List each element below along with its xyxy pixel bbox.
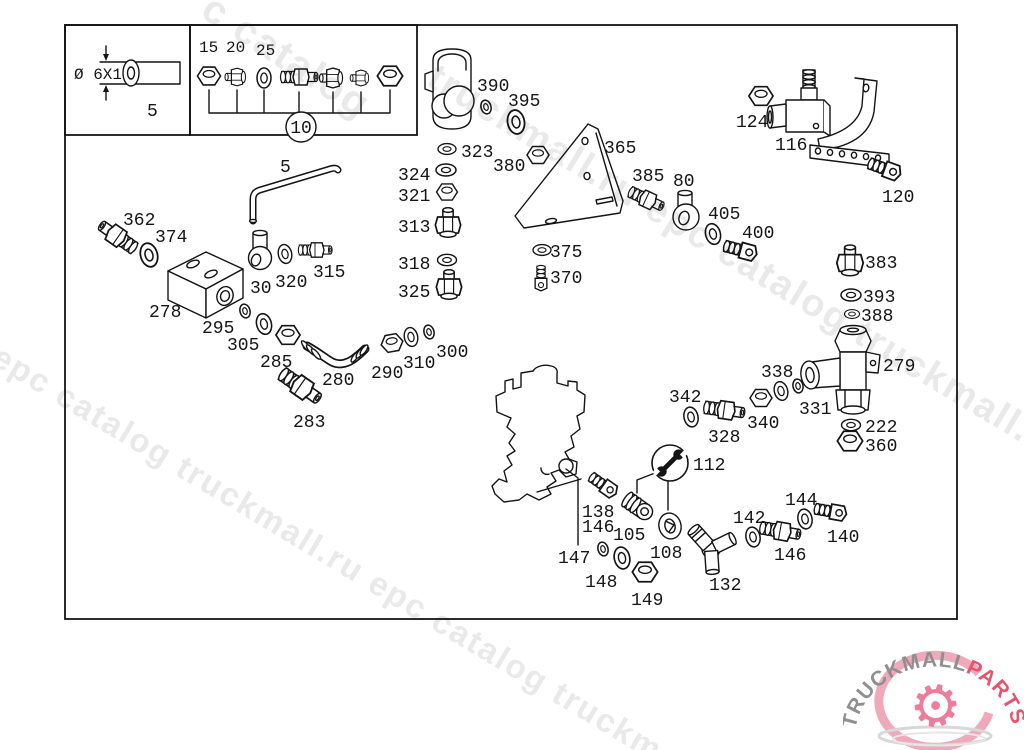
group-item-label: 15 <box>199 39 218 57</box>
tube-length-label: 5 <box>147 102 158 122</box>
part-label-390: 390 <box>477 77 509 97</box>
seal-ring-icon <box>845 310 860 319</box>
part-label-342: 342 <box>669 388 701 408</box>
dimension-arrow-down <box>103 54 109 61</box>
o-ring-icon <box>403 326 420 347</box>
part-label-383: 383 <box>865 254 897 274</box>
part-label-388: 388 <box>861 307 893 327</box>
cap-nut-icon <box>276 326 300 345</box>
truckmall-logo: ⚙ TRUCKMALLPARTS <box>843 633 1024 750</box>
part-5-pipe-glyph <box>250 168 338 222</box>
part-label-385: 385 <box>632 167 664 187</box>
fitting-icon <box>586 470 620 500</box>
washer-icon <box>533 245 551 256</box>
part-label-80: 80 <box>673 172 695 192</box>
o-ring-icon <box>238 303 251 319</box>
plug-fitting-icon <box>435 208 460 237</box>
o-ring-icon <box>422 324 435 340</box>
part-280-glyph <box>300 340 369 364</box>
nut-icon <box>527 147 549 164</box>
part-label-365: 365 <box>604 139 636 159</box>
tube-dimension-label: Ø 6X1 <box>74 66 122 84</box>
part-label-315: 315 <box>313 263 345 283</box>
part-label-338: 338 <box>761 363 793 383</box>
group-item-label: 25 <box>256 42 275 60</box>
part-label-108: 108 <box>650 544 682 564</box>
part-label-325: 325 <box>398 283 430 303</box>
union-fitting-icon <box>703 398 746 421</box>
o-ring-icon <box>682 406 700 428</box>
part-label-147: 147 <box>558 549 590 569</box>
part-label-290: 290 <box>371 364 403 384</box>
part-valve-top-glyph <box>425 49 474 129</box>
cap-nut-icon <box>380 333 405 354</box>
washer-icon <box>841 289 861 301</box>
part-label-320: 320 <box>275 273 307 293</box>
part-label-146b: 146 <box>774 546 806 566</box>
washer-icon <box>438 144 456 155</box>
plug-fitting-icon <box>436 270 461 299</box>
part-label-144: 144 <box>785 491 817 511</box>
o-ring-icon <box>254 312 274 336</box>
part-label-328: 328 <box>708 428 740 448</box>
pump-body-outline <box>492 365 585 502</box>
o-ring-icon <box>772 380 790 402</box>
nut-icon <box>632 562 657 582</box>
part-label-370: 370 <box>550 269 582 289</box>
part-label-112: 112 <box>693 456 725 476</box>
part-label-340: 340 <box>747 414 779 434</box>
part-label-395: 395 <box>508 92 540 112</box>
nut-icon <box>377 66 402 86</box>
part-label-362: 362 <box>123 211 155 231</box>
part-label-5: 5 <box>280 158 291 178</box>
plug-fitting-icon <box>225 68 245 86</box>
o-ring-icon <box>506 109 527 136</box>
part-label-146: 146 <box>582 518 614 538</box>
seal-ring-icon <box>796 508 814 530</box>
group-item-label: 20 <box>226 39 245 57</box>
o-ring-icon <box>612 546 632 571</box>
part-label-380: 380 <box>493 157 525 177</box>
part-label-116: 116 <box>775 136 807 156</box>
part-label-283: 283 <box>293 413 325 433</box>
nut-icon <box>437 184 458 200</box>
part-108-glyph <box>656 511 684 542</box>
fitting-group-drawing: 15 20 25 10 <box>197 39 402 142</box>
part-label-321: 321 <box>398 187 430 207</box>
nut-icon <box>837 431 862 451</box>
seal-ring-icon <box>703 222 723 246</box>
part-label-222: 222 <box>865 418 897 438</box>
nut-icon <box>749 87 773 106</box>
part-label-393: 393 <box>863 288 895 308</box>
union-fitting-icon <box>298 243 332 257</box>
part-label-310: 310 <box>403 354 435 374</box>
inset-tube-drawing: Ø 6X1 5 <box>74 46 180 122</box>
part-label-324: 324 <box>398 166 430 186</box>
part-label-285: 285 <box>260 353 292 373</box>
hollow-screw-icon <box>813 501 848 521</box>
part-label-375: 375 <box>550 243 582 263</box>
o-ring-icon <box>257 68 271 88</box>
washer-icon <box>436 164 456 176</box>
part-30-glyph <box>249 230 272 269</box>
dimension-arrow-up <box>103 85 109 92</box>
leader-line <box>637 473 655 493</box>
part-label-142: 142 <box>733 509 765 529</box>
union-fitting-icon <box>281 69 319 85</box>
part-label-374: 374 <box>155 228 187 248</box>
o-ring-icon <box>277 243 294 264</box>
part-label-331: 331 <box>799 400 831 420</box>
part-label-132: 132 <box>709 576 741 596</box>
part-label-313: 313 <box>398 218 430 238</box>
part-112-wrench-symbol <box>652 445 688 481</box>
part-80-glyph <box>673 190 699 230</box>
part-label-360: 360 <box>865 437 897 457</box>
group-number-label: 10 <box>290 119 312 139</box>
part-label-323: 323 <box>461 143 493 163</box>
part-105-glyph <box>620 491 656 523</box>
cap-icon <box>320 68 343 88</box>
part-label-318: 318 <box>398 255 430 275</box>
part-label-140: 140 <box>827 528 859 548</box>
plug-fitting-icon <box>837 245 863 276</box>
union-fitting-icon <box>626 184 667 214</box>
part-label-305: 305 <box>227 336 259 356</box>
part-label-400: 400 <box>742 224 774 244</box>
o-ring-icon <box>479 99 492 115</box>
part-label-149: 149 <box>631 591 663 611</box>
part-label-405: 405 <box>708 205 740 225</box>
part-label-124: 124 <box>736 113 768 133</box>
washer-icon <box>438 254 457 265</box>
seal-ring-icon <box>596 541 609 557</box>
plug-fitting-icon <box>350 70 368 86</box>
part-label-280: 280 <box>322 371 354 391</box>
screw-icon <box>535 265 547 290</box>
part-116-glyph <box>767 70 830 136</box>
part-132-glyph <box>687 523 738 575</box>
part-label-30: 30 <box>250 279 272 299</box>
nut-icon <box>750 390 772 407</box>
washer-icon <box>842 419 861 430</box>
logo-text-accent: PARTS <box>963 656 1024 728</box>
nut-icon <box>197 67 220 85</box>
part-label-120: 120 <box>882 188 914 208</box>
part-label-279: 279 <box>883 357 915 377</box>
part-label-300: 300 <box>436 343 468 363</box>
parts-diagram-page: c catalog truckmall.ru epc catalog truck… <box>0 0 1024 750</box>
part-label-148: 148 <box>585 573 617 593</box>
part-label-278: 278 <box>149 303 181 323</box>
part-label-105: 105 <box>613 526 645 546</box>
